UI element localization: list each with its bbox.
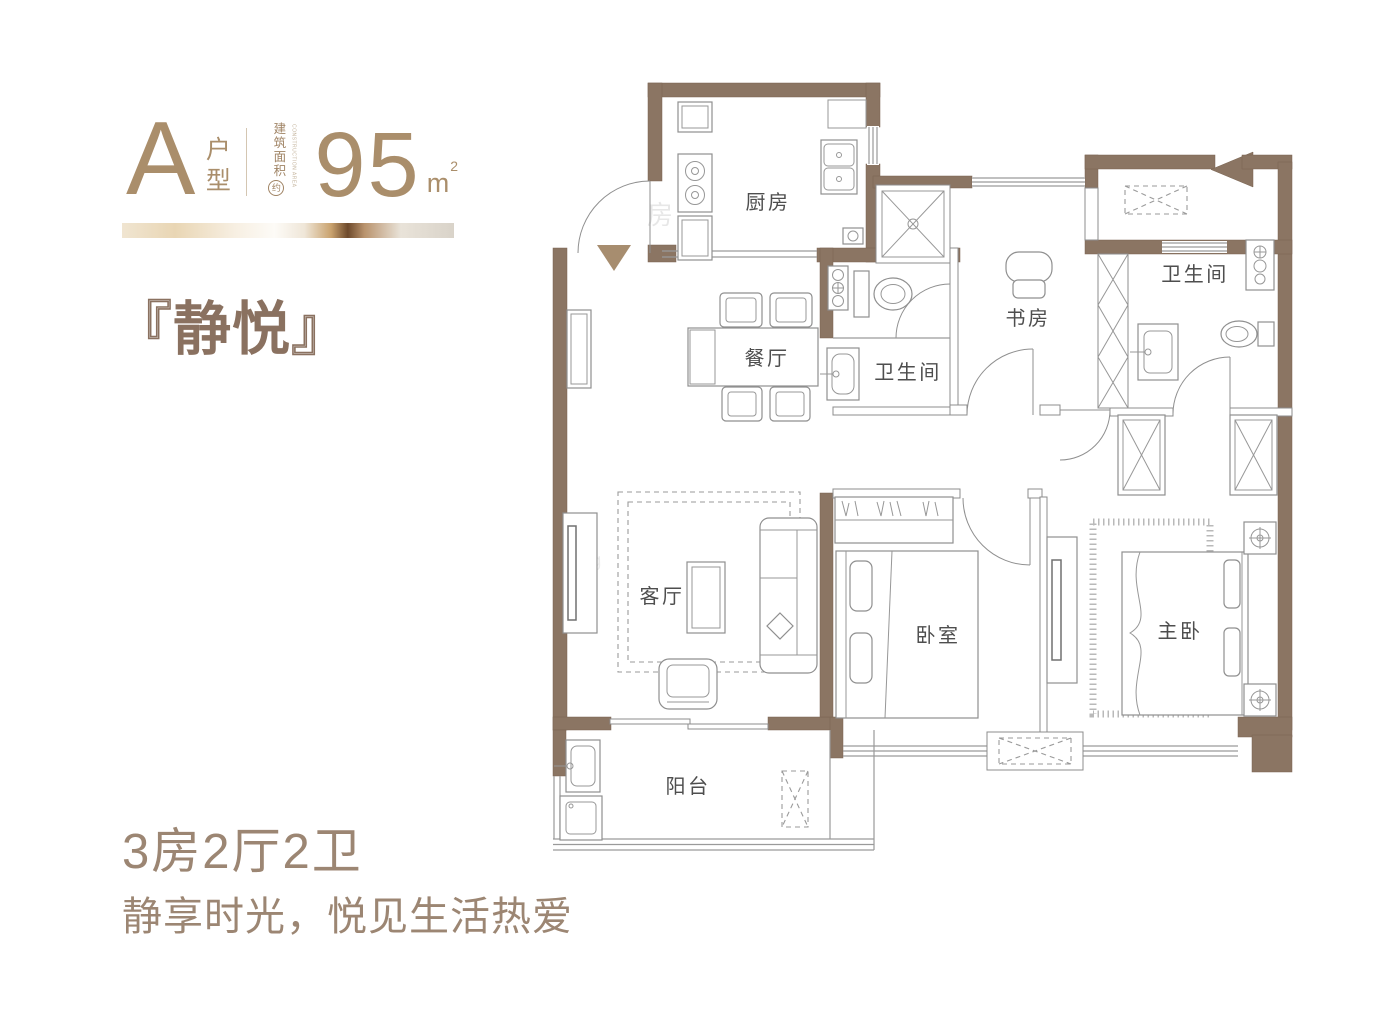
ac-platform-south bbox=[987, 732, 1083, 770]
study-furniture bbox=[1006, 252, 1052, 298]
area-value: 95 bbox=[314, 132, 420, 198]
room-label-master: 主卧 bbox=[1158, 620, 1203, 643]
watermark: 房 bbox=[647, 200, 673, 230]
title-name: 静悦 bbox=[173, 297, 291, 362]
type-label: 户型 bbox=[203, 136, 228, 198]
counter bbox=[828, 100, 866, 128]
plan-header: A 户型 建筑面积 CONSTRUCTION AREA 约 95 m2 bbox=[126, 118, 457, 198]
closet-column bbox=[1098, 254, 1128, 408]
title-bracket-close: 』 bbox=[291, 297, 350, 362]
slogan: 静享时光，悦见生活热爱 bbox=[122, 884, 573, 942]
room-label-bathroom2: 卫生间 bbox=[1161, 263, 1229, 286]
study-door-arc bbox=[967, 349, 1033, 415]
room-label-study: 书房 bbox=[1006, 307, 1051, 330]
header-divider bbox=[246, 128, 247, 196]
sofa bbox=[760, 518, 817, 673]
balcony-slider-panel bbox=[610, 719, 690, 724]
balcony-slider-panel bbox=[688, 724, 768, 729]
room-count-summary: 3房2厅2卫 bbox=[122, 812, 363, 883]
toilet bbox=[874, 278, 912, 310]
shaft-elevator bbox=[876, 185, 950, 263]
wardrobe bbox=[1118, 415, 1277, 495]
type-letter: A bbox=[126, 122, 195, 198]
toilet-tank bbox=[854, 271, 869, 317]
decorative-gradient-bar bbox=[122, 223, 454, 238]
entry-door-arc bbox=[578, 181, 650, 253]
area-approx-badge: 约 bbox=[268, 180, 284, 196]
plan-title: 『静悦』 bbox=[114, 282, 350, 366]
area-label: 建筑面积 bbox=[269, 122, 288, 178]
floorplan-drawing: 房 Fang bbox=[540, 82, 1300, 857]
coffee-table bbox=[687, 562, 725, 633]
area-label-en: CONSTRUCTION AREA bbox=[290, 124, 296, 188]
floorplan-page: A 户型 建筑面积 CONSTRUCTION AREA 约 95 m2 『静悦』… bbox=[0, 0, 1400, 1012]
floor-drain bbox=[843, 228, 863, 244]
pillow bbox=[1224, 628, 1240, 676]
room-label-balcony: 阳台 bbox=[666, 775, 711, 798]
master-door-arc bbox=[1060, 410, 1110, 460]
pillow bbox=[850, 633, 872, 683]
room-label-living: 客厅 bbox=[640, 585, 685, 608]
title-bracket-open: 『 bbox=[114, 297, 173, 362]
area-label-block: 建筑面积 CONSTRUCTION AREA 约 bbox=[266, 122, 302, 198]
tv bbox=[1052, 560, 1061, 660]
toilet-tank bbox=[1258, 322, 1274, 346]
entry-arrow-icon bbox=[597, 245, 631, 271]
room-label-dining: 餐厅 bbox=[745, 347, 790, 370]
room-label-kitchen: 厨房 bbox=[746, 191, 791, 214]
desk-chair bbox=[1006, 252, 1052, 282]
room-label-bedroom: 卧室 bbox=[916, 624, 961, 647]
kitchen-cabinet bbox=[678, 216, 712, 260]
ac-platform-north bbox=[1125, 186, 1187, 214]
room-label-bathroom1: 卫生间 bbox=[874, 361, 942, 384]
kitchen-fixtures bbox=[678, 100, 866, 260]
area-unit: m2 bbox=[427, 170, 457, 198]
bathroom2-fixtures bbox=[1130, 240, 1274, 380]
pillow bbox=[850, 561, 872, 611]
stove bbox=[678, 154, 712, 212]
kitchen-sink bbox=[821, 140, 857, 194]
bath2-door-arc bbox=[1173, 357, 1230, 414]
pillow bbox=[1224, 560, 1240, 608]
tv bbox=[568, 526, 576, 620]
master-furniture bbox=[1093, 522, 1276, 716]
